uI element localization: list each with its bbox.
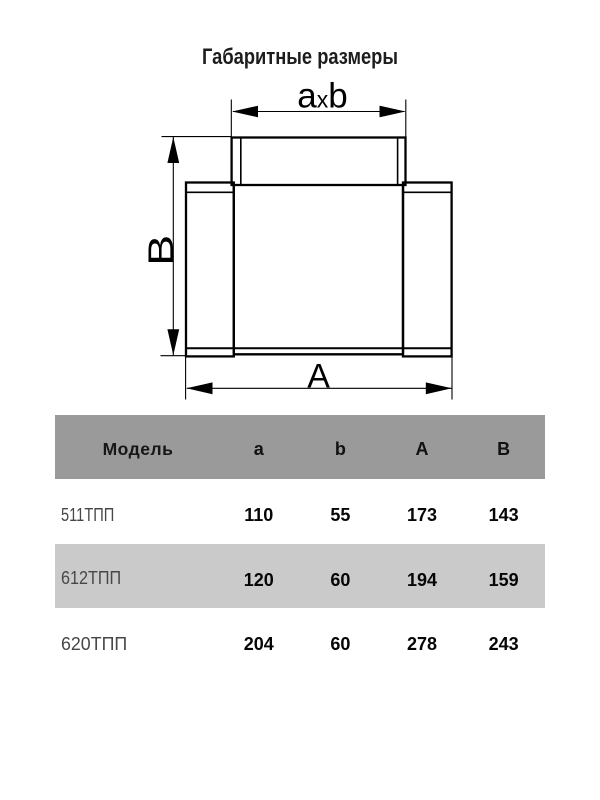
svg-text:B: B [142,235,181,266]
svg-text:Габаритные размеры: Габаритные размеры [202,44,398,69]
svg-text:axb: axb [297,77,347,116]
svg-text:A: A [307,357,330,395]
